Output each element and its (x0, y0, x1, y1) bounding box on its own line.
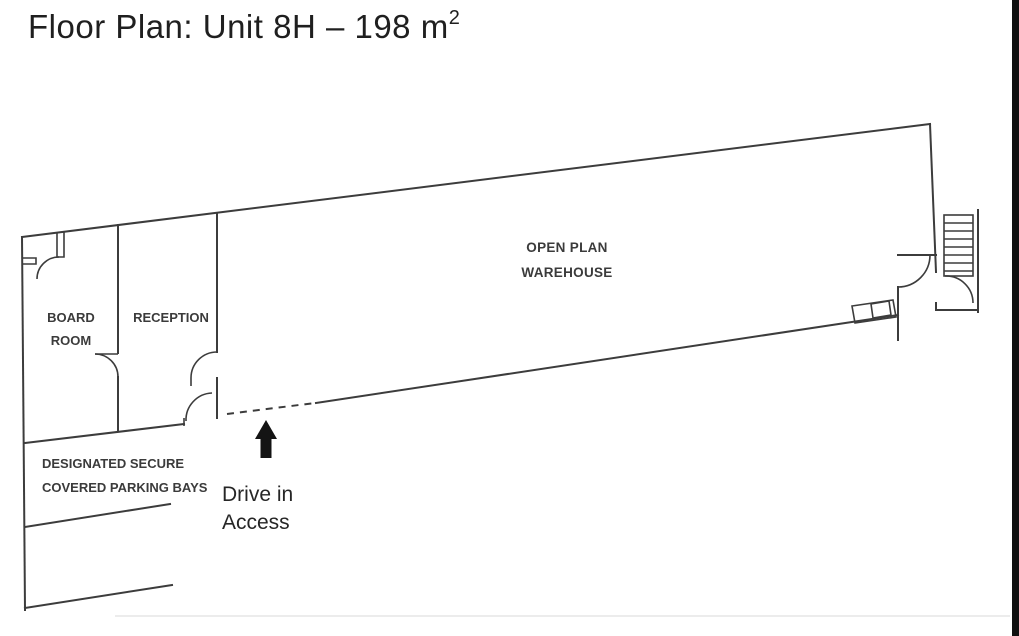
board-room-label-line1: BOARD (47, 310, 95, 325)
stairwell-bottom-wall (936, 303, 978, 310)
drive-in-label-line2: Access (222, 511, 290, 534)
warehouse-bottom-wall (316, 315, 898, 403)
entrance-door-jamb (57, 232, 64, 257)
floor-plan-page: Floor Plan: Unit 8H – 198 m2 (0, 0, 1019, 636)
parking-label-line1: DESIGNATED SECURE (42, 456, 184, 471)
entrance-door-swing-arc (37, 257, 59, 279)
reception-door-swing-arc (191, 352, 217, 378)
parking-bay-line-1 (25, 504, 170, 527)
staircase-outline (944, 215, 973, 276)
drive-in-opening-dashed-line (227, 403, 315, 414)
stairwell-door-swing-arc (898, 255, 930, 287)
warehouse-label-line2: WAREHOUSE (521, 265, 612, 280)
stairs-bottom-door-swing-arc (945, 276, 973, 303)
fixture-inner (871, 301, 891, 318)
parking-bay-line-2 (25, 585, 172, 608)
board-room-door-swing-arc (95, 354, 118, 377)
drive-in-label-line1: Drive in (222, 483, 293, 506)
warehouse-label-line1: OPEN PLAN (526, 240, 607, 255)
floor-plan-drawing: BOARD ROOM RECEPTION OPEN PLAN WAREHOUSE… (0, 0, 1019, 636)
reception-label: RECEPTION (133, 310, 209, 325)
reception-exit-door-swing-arc (186, 393, 212, 421)
screen-right-edge-bar (1012, 0, 1019, 636)
top-wall (22, 124, 930, 237)
staircase-treads (944, 223, 973, 271)
office-bottom-wall (25, 424, 184, 443)
right-wall (930, 124, 936, 272)
up-arrow-icon (255, 420, 277, 458)
left-wall (22, 237, 25, 610)
parking-label-line2: COVERED PARKING BAYS (42, 480, 208, 495)
entrance-door-jamb-left (22, 258, 36, 264)
board-room-label-line2: ROOM (51, 333, 91, 348)
